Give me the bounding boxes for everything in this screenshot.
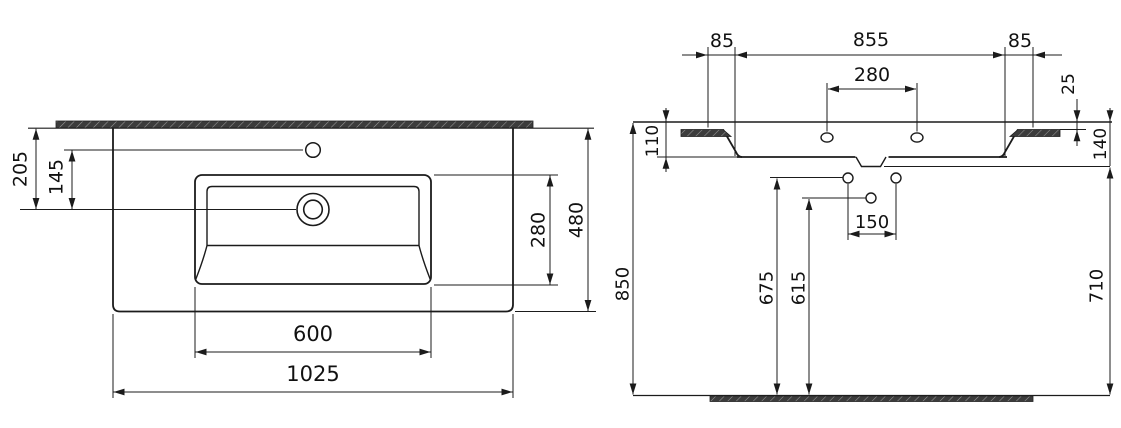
mounting-bracket-left xyxy=(681,130,731,137)
dim-label-280-front: 280 xyxy=(854,64,890,86)
dim-label-855: 855 xyxy=(853,29,889,51)
dim-label-710: 710 xyxy=(1086,269,1107,303)
fixing-hole-left xyxy=(821,133,833,142)
floor-hatch xyxy=(710,396,1033,402)
dim-label-850: 850 xyxy=(612,267,633,301)
dim-label-205: 205 xyxy=(10,151,32,187)
basin-bowl-outline xyxy=(195,175,431,284)
front-view: 85 855 85 280 25 110 140 710 850 675 615 xyxy=(612,29,1112,402)
outlet-hole-left xyxy=(843,173,853,183)
dim-label-140: 140 xyxy=(1091,128,1111,160)
dim-label-85-left: 85 xyxy=(710,30,734,52)
fixing-hole-right xyxy=(911,133,923,142)
dim-label-25: 25 xyxy=(1059,73,1079,95)
dim-label-110: 110 xyxy=(643,125,663,157)
wall-section-hatch xyxy=(56,121,533,128)
outlet-hole-mid xyxy=(866,193,876,203)
drawing-svg: 205 145 480 280 600 1025 xyxy=(0,0,1121,428)
dim-label-1025: 1025 xyxy=(286,362,339,386)
dim-label-600: 600 xyxy=(293,322,333,346)
technical-drawing: 205 145 480 280 600 1025 xyxy=(0,0,1121,428)
drain-hole-outer xyxy=(297,194,329,226)
dim-label-280-plan: 280 xyxy=(528,212,550,248)
faucet-hole xyxy=(306,143,321,158)
mounting-bracket-right xyxy=(1010,130,1060,137)
drain-hole-inner xyxy=(304,200,323,219)
basin-front-curve-left xyxy=(196,246,208,281)
dim-label-150: 150 xyxy=(855,212,889,233)
outlet-hole-right xyxy=(891,173,901,183)
dim-label-145: 145 xyxy=(46,159,68,195)
dim-label-675: 675 xyxy=(756,271,777,305)
basin-front-curve-right xyxy=(419,246,431,281)
basin-bowl-inner xyxy=(207,187,419,246)
dim-label-480: 480 xyxy=(566,202,588,238)
dim-label-85-right: 85 xyxy=(1008,30,1032,52)
drain-boss xyxy=(856,157,886,167)
dim-label-615: 615 xyxy=(788,271,809,305)
plan-view: 205 145 480 280 600 1025 xyxy=(10,121,596,398)
